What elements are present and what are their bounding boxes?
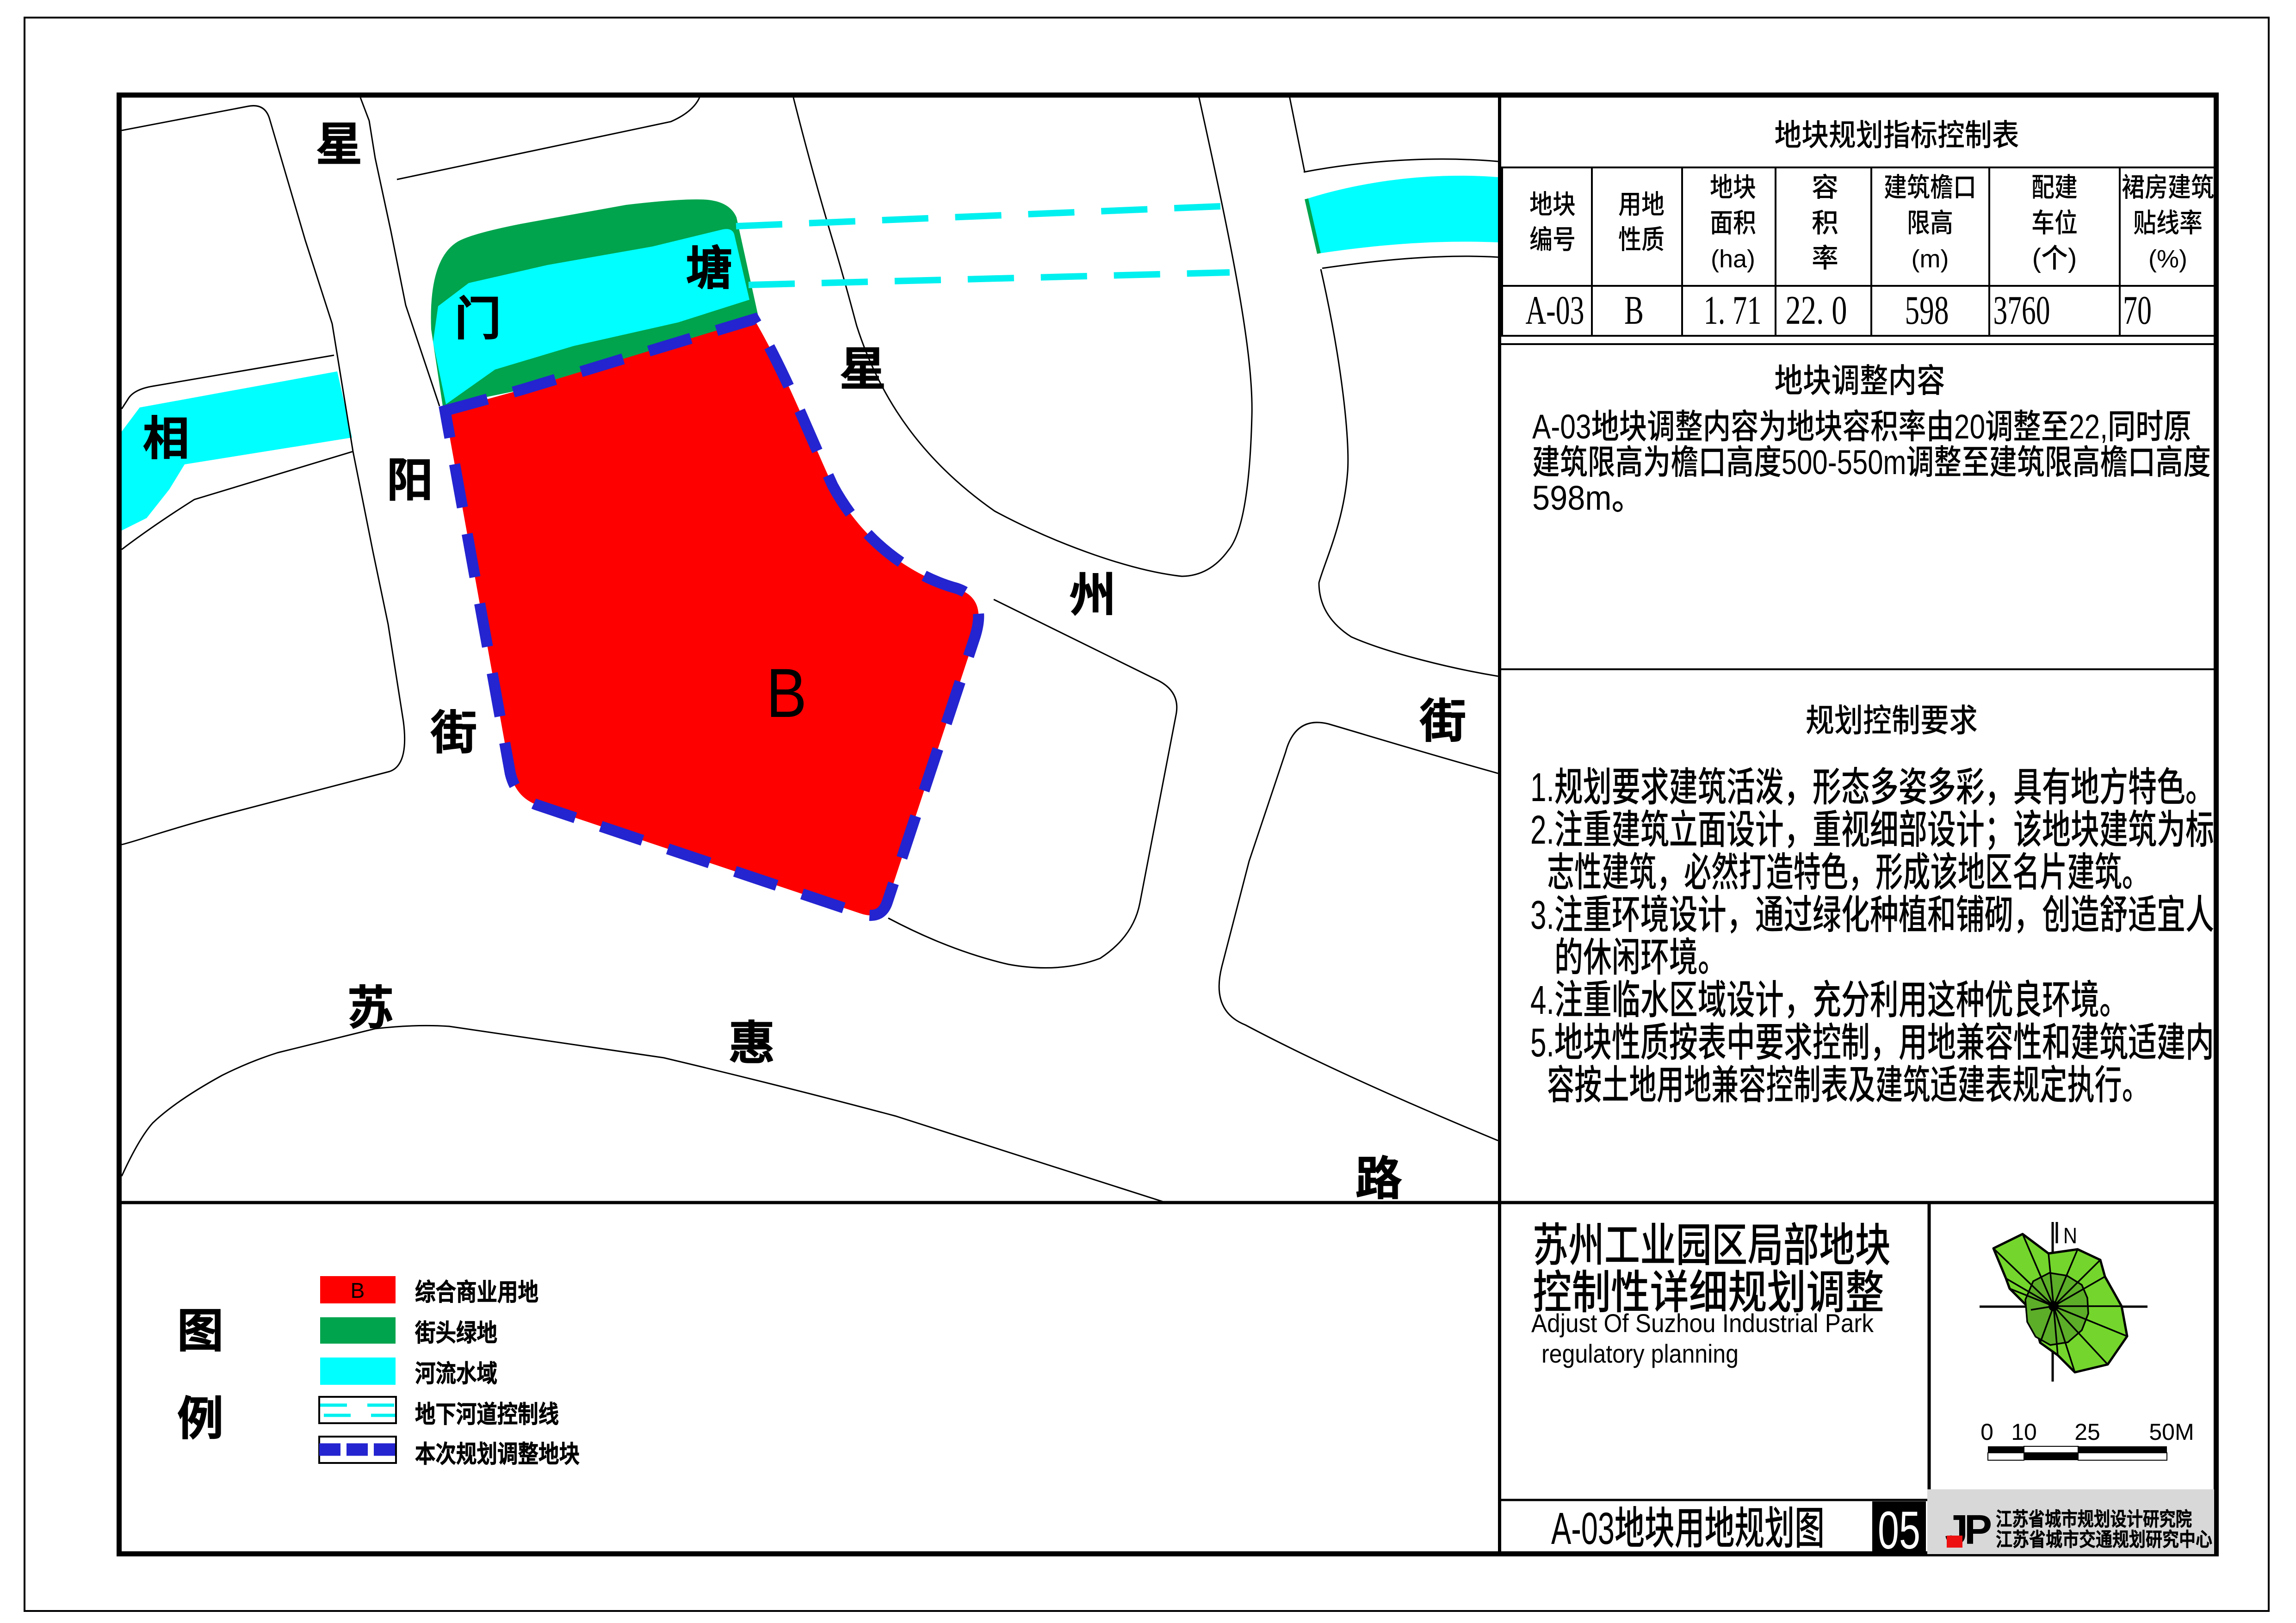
svg-text:容: 容: [1812, 166, 1838, 204]
svg-text:惠: 惠: [729, 1006, 775, 1073]
svg-text:1. 71: 1. 71: [1704, 288, 1762, 333]
svg-text:综合商业用地: 综合商业用地: [415, 1273, 538, 1308]
svg-text:车位: 车位: [2031, 201, 2078, 240]
svg-text:Adjust Of Suzhou Industrial Pa: Adjust Of Suzhou Industrial Park: [1531, 1308, 1874, 1338]
svg-text:街: 街: [1419, 684, 1466, 751]
svg-text:(%): (%): [2148, 245, 2187, 273]
svg-text:22. 0: 22. 0: [1786, 288, 1847, 333]
svg-text:地块规划指标控制表: 地块规划指标控制表: [1775, 111, 2019, 155]
svg-text:3760: 3760: [1993, 288, 2050, 333]
svg-text:例: 例: [177, 1381, 223, 1448]
svg-text:积: 积: [1812, 201, 1838, 240]
svg-text:河流水域: 河流水域: [415, 1354, 497, 1389]
svg-text:70: 70: [2123, 288, 2152, 333]
svg-text:性质: 性质: [1618, 218, 1665, 257]
svg-text:598: 598: [1905, 288, 1949, 333]
svg-text:(ha): (ha): [1711, 245, 1755, 273]
svg-text:阳: 阳: [387, 443, 433, 510]
svg-text:限高: 限高: [1907, 201, 1953, 240]
svg-text:用地: 用地: [1618, 183, 1665, 222]
svg-text:编号: 编号: [1529, 218, 1576, 257]
svg-text:贴线率: 贴线率: [2133, 201, 2203, 240]
svg-text:容按土地用地兼容控制表及建筑适建表规定执行。: 容按土地用地兼容控制表及建筑适建表规定执行。: [1547, 1053, 2149, 1111]
svg-text:图: 图: [177, 1293, 223, 1360]
svg-text:建筑檐口: 建筑檐口: [1884, 166, 1976, 204]
svg-text:10: 10: [2011, 1419, 2037, 1445]
svg-text:地块调整内容: 地块调整内容: [1775, 353, 1945, 402]
svg-text:本次规划调整地块: 本次规划调整地块: [415, 1435, 580, 1470]
svg-text:面积: 面积: [1710, 201, 1756, 240]
svg-text:50M: 50M: [2149, 1419, 2194, 1445]
svg-text:05: 05: [1878, 1501, 1920, 1560]
svg-text:地下河道控制线: 地下河道控制线: [415, 1395, 559, 1430]
svg-text:门: 门: [455, 281, 501, 348]
svg-text:街: 街: [430, 695, 477, 762]
svg-text:B: B: [766, 654, 807, 732]
svg-text:(个): (个): [2032, 236, 2077, 275]
svg-text:路: 路: [1355, 1141, 1402, 1208]
svg-text:(m): (m): [1912, 245, 1949, 273]
svg-text:地块: 地块: [1710, 166, 1756, 204]
svg-text:星: 星: [316, 107, 362, 174]
svg-text:相: 相: [143, 401, 189, 468]
svg-text:配建: 配建: [2031, 166, 2078, 204]
svg-text:B: B: [1624, 288, 1644, 333]
svg-text:江苏省城市交通规划研究中心: 江苏省城市交通规划研究中心: [1996, 1524, 2212, 1552]
svg-text:街头绿地: 街头绿地: [415, 1314, 497, 1349]
svg-text:B: B: [351, 1278, 365, 1302]
svg-text:州: 州: [1070, 557, 1116, 624]
svg-text:率: 率: [1812, 236, 1838, 275]
svg-text:25: 25: [2074, 1419, 2100, 1445]
svg-text:598m。: 598m。: [1532, 470, 1643, 520]
svg-text:裙房建筑: 裙房建筑: [2122, 166, 2214, 204]
svg-text:苏: 苏: [347, 970, 394, 1037]
svg-text:0: 0: [1980, 1419, 1993, 1445]
svg-text:塘: 塘: [686, 231, 732, 298]
svg-text:A-03: A-03: [1526, 288, 1584, 333]
svg-text:regulatory planning: regulatory planning: [1541, 1339, 1739, 1368]
svg-text:规划控制要求: 规划控制要求: [1806, 695, 1978, 741]
svg-text:地块: 地块: [1529, 183, 1576, 222]
svg-text:N: N: [2063, 1224, 2077, 1248]
svg-text:A-03地块用地规划图: A-03地块用地规划图: [1551, 1492, 1825, 1557]
svg-text:星: 星: [840, 332, 886, 399]
